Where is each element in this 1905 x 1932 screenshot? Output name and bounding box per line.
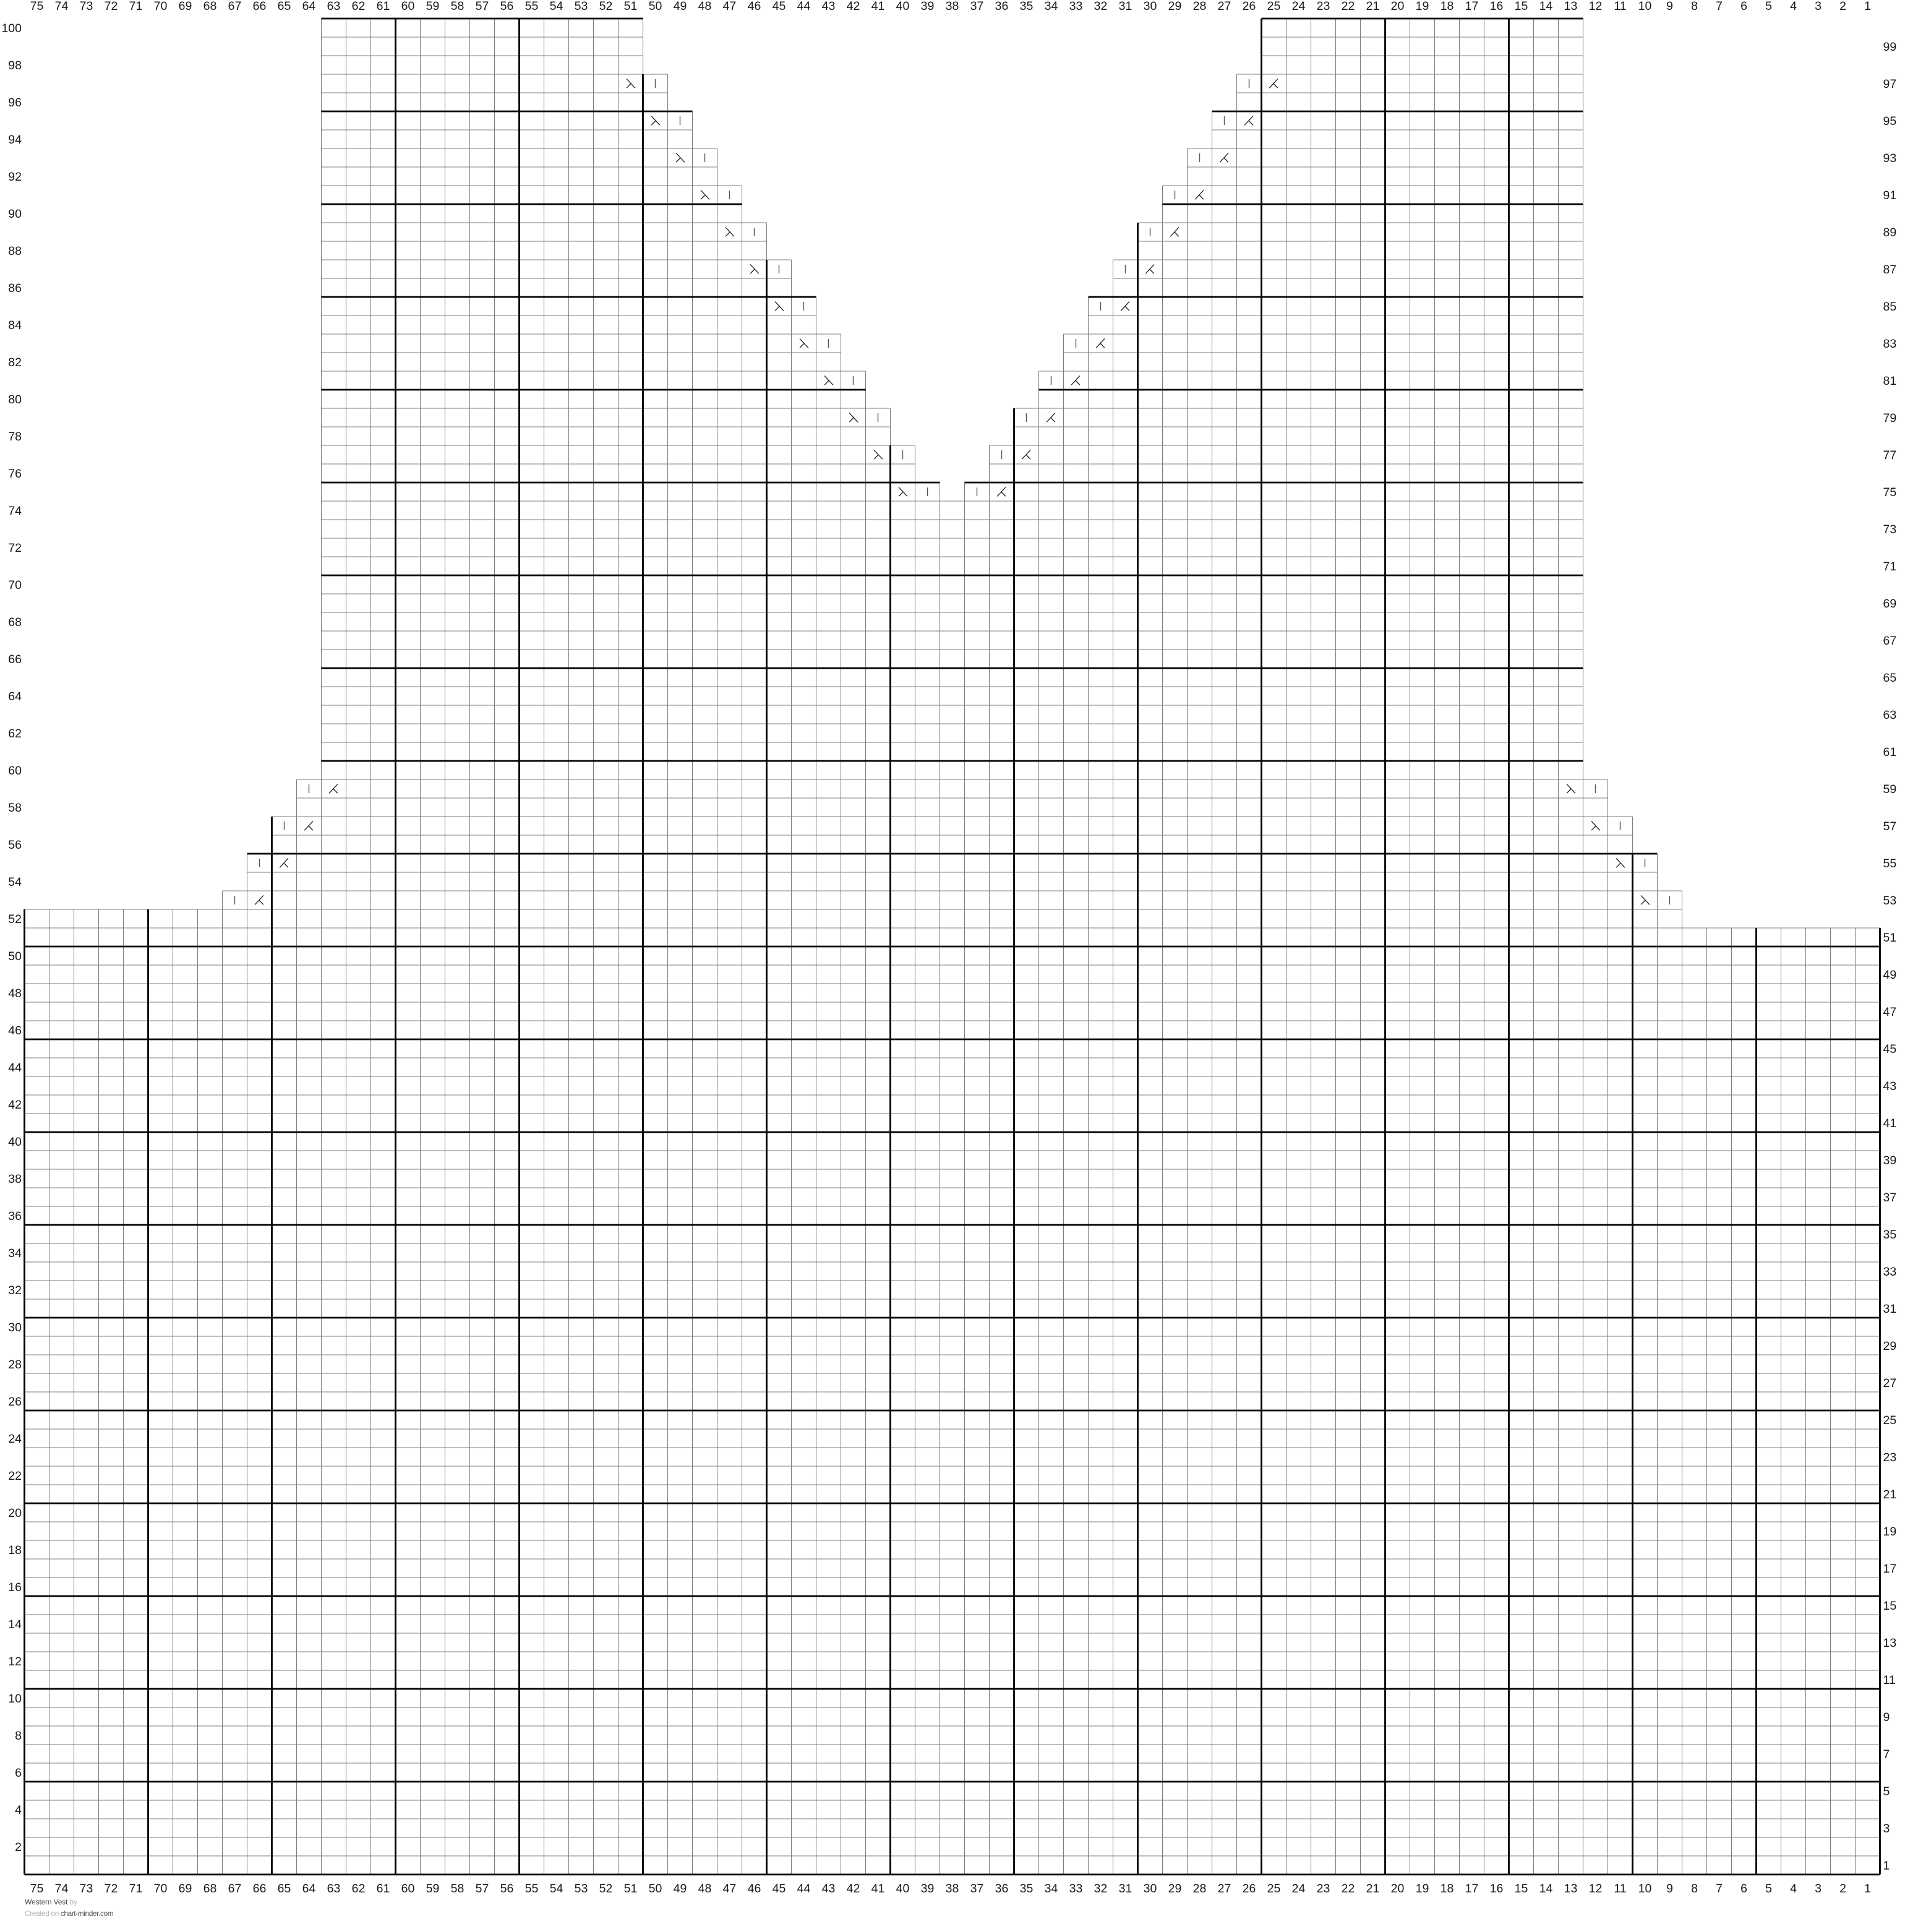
svg-text:80: 80 (8, 393, 22, 406)
svg-text:18: 18 (8, 1543, 22, 1557)
svg-text:67: 67 (228, 0, 242, 13)
svg-text:23: 23 (1883, 1451, 1897, 1464)
svg-text:2: 2 (1839, 0, 1846, 13)
svg-text:39: 39 (1883, 1154, 1897, 1167)
svg-text:64: 64 (302, 0, 316, 13)
svg-text:65: 65 (1883, 671, 1897, 685)
svg-text:6: 6 (1740, 0, 1747, 13)
svg-text:15: 15 (1883, 1599, 1897, 1613)
svg-text:38: 38 (8, 1172, 22, 1186)
svg-text:29: 29 (1168, 1882, 1182, 1896)
svg-text:24: 24 (1292, 1882, 1306, 1896)
svg-text:71: 71 (129, 0, 143, 13)
svg-text:84: 84 (8, 319, 22, 332)
svg-text:11: 11 (1614, 1882, 1626, 1896)
svg-text:57: 57 (476, 0, 489, 13)
svg-text:3: 3 (1883, 1822, 1890, 1835)
svg-text:21: 21 (1883, 1488, 1897, 1501)
svg-text:93: 93 (1883, 152, 1897, 165)
svg-text:32: 32 (1094, 0, 1108, 13)
svg-text:9: 9 (1666, 1882, 1673, 1896)
svg-text:36: 36 (995, 1882, 1009, 1896)
svg-text:61: 61 (1883, 745, 1897, 759)
svg-text:62: 62 (352, 1882, 366, 1896)
svg-text:33: 33 (1069, 1882, 1083, 1896)
svg-text:37: 37 (1883, 1191, 1897, 1204)
svg-text:44: 44 (8, 1061, 22, 1075)
svg-text:71: 71 (1883, 560, 1897, 573)
svg-text:17: 17 (1465, 1882, 1479, 1896)
svg-text:35: 35 (1883, 1228, 1897, 1242)
svg-text:34: 34 (1045, 1882, 1058, 1896)
svg-text:25: 25 (1267, 1882, 1281, 1896)
svg-text:52: 52 (8, 912, 22, 926)
svg-text:6: 6 (1740, 1882, 1747, 1896)
svg-text:59: 59 (1883, 783, 1897, 796)
svg-text:68: 68 (8, 616, 22, 629)
svg-text:52: 52 (599, 0, 613, 13)
svg-text:79: 79 (1883, 411, 1897, 425)
svg-text:41: 41 (871, 0, 885, 13)
svg-text:30: 30 (1144, 1882, 1157, 1896)
svg-text:48: 48 (698, 1882, 712, 1896)
svg-text:74: 74 (55, 0, 69, 13)
svg-text:41: 41 (1883, 1117, 1897, 1130)
svg-text:20: 20 (1391, 1882, 1405, 1896)
svg-text:31: 31 (1119, 0, 1132, 13)
svg-text:4: 4 (1790, 1882, 1797, 1896)
svg-text:17: 17 (1883, 1562, 1897, 1576)
svg-text:44: 44 (797, 1882, 811, 1896)
svg-text:46: 46 (8, 1024, 22, 1037)
svg-text:60: 60 (8, 764, 22, 778)
svg-text:50: 50 (8, 950, 22, 963)
svg-text:Created on chart-minder.com: Created on chart-minder.com (25, 1909, 114, 1918)
svg-text:54: 54 (550, 0, 563, 13)
svg-text:16: 16 (1490, 1882, 1504, 1896)
svg-text:33: 33 (1069, 0, 1083, 13)
svg-text:43: 43 (822, 1882, 836, 1896)
svg-text:5: 5 (1765, 0, 1772, 13)
svg-text:27: 27 (1883, 1376, 1897, 1390)
svg-text:55: 55 (525, 0, 539, 13)
svg-text:22: 22 (8, 1469, 22, 1483)
svg-text:85: 85 (1883, 300, 1897, 314)
svg-text:28: 28 (1193, 0, 1207, 13)
svg-text:1: 1 (1883, 1859, 1890, 1873)
svg-text:53: 53 (575, 0, 588, 13)
svg-text:59: 59 (426, 1882, 440, 1896)
svg-text:35: 35 (1020, 0, 1034, 13)
svg-text:58: 58 (8, 801, 22, 815)
svg-text:82: 82 (8, 356, 22, 369)
svg-text:49: 49 (674, 1882, 687, 1896)
svg-text:9: 9 (1666, 0, 1673, 13)
svg-text:30: 30 (8, 1321, 22, 1334)
svg-text:39: 39 (921, 1882, 935, 1896)
svg-text:66: 66 (253, 0, 267, 13)
svg-text:73: 73 (1883, 523, 1897, 536)
svg-text:22: 22 (1342, 0, 1355, 13)
svg-text:14: 14 (1539, 0, 1553, 13)
svg-text:44: 44 (797, 0, 811, 13)
svg-text:89: 89 (1883, 226, 1897, 239)
svg-text:28: 28 (8, 1358, 22, 1372)
svg-text:23: 23 (1317, 0, 1330, 13)
svg-text:36: 36 (995, 0, 1009, 13)
svg-text:19: 19 (1883, 1525, 1897, 1539)
svg-text:28: 28 (1193, 1882, 1207, 1896)
svg-text:19: 19 (1416, 1882, 1429, 1896)
svg-text:64: 64 (8, 690, 22, 703)
svg-text:68: 68 (203, 1882, 217, 1896)
svg-text:35: 35 (1020, 1882, 1034, 1896)
svg-text:11: 11 (1614, 0, 1626, 13)
svg-text:75: 75 (30, 0, 44, 13)
svg-text:50: 50 (649, 1882, 662, 1896)
svg-text:39: 39 (921, 0, 935, 13)
svg-text:54: 54 (8, 875, 22, 889)
svg-text:7: 7 (1716, 1882, 1723, 1896)
svg-text:70: 70 (154, 1882, 168, 1896)
svg-text:94: 94 (8, 133, 22, 147)
svg-text:61: 61 (377, 1882, 390, 1896)
svg-text:17: 17 (1465, 0, 1479, 13)
svg-text:74: 74 (8, 504, 22, 518)
svg-text:53: 53 (1883, 894, 1897, 908)
svg-text:65: 65 (278, 1882, 291, 1896)
svg-text:14: 14 (8, 1618, 22, 1631)
svg-text:24: 24 (1292, 0, 1306, 13)
svg-text:3: 3 (1815, 0, 1822, 13)
svg-text:16: 16 (8, 1581, 22, 1594)
svg-text:31: 31 (1119, 1882, 1132, 1896)
svg-text:99: 99 (1883, 40, 1897, 54)
svg-text:47: 47 (723, 0, 737, 13)
svg-text:38: 38 (946, 0, 959, 13)
svg-text:72: 72 (8, 541, 22, 555)
svg-text:81: 81 (1883, 374, 1897, 388)
svg-text:42: 42 (847, 0, 860, 13)
svg-text:1: 1 (1864, 1882, 1871, 1896)
svg-text:75: 75 (30, 1882, 44, 1896)
svg-text:Western Vest by: Western Vest by (25, 1898, 77, 1907)
svg-text:49: 49 (674, 0, 687, 13)
svg-text:23: 23 (1317, 1882, 1330, 1896)
svg-text:47: 47 (1883, 1005, 1897, 1019)
svg-text:5: 5 (1765, 1882, 1772, 1896)
svg-text:33: 33 (1883, 1265, 1897, 1279)
svg-text:26: 26 (1243, 1882, 1256, 1896)
svg-text:58: 58 (451, 1882, 464, 1896)
svg-text:26: 26 (8, 1395, 22, 1409)
svg-text:86: 86 (8, 281, 22, 295)
svg-text:57: 57 (1883, 820, 1897, 833)
svg-text:6: 6 (15, 1766, 22, 1780)
svg-text:29: 29 (1883, 1339, 1897, 1353)
svg-text:51: 51 (624, 0, 638, 13)
svg-text:100: 100 (1, 22, 22, 35)
svg-text:60: 60 (401, 1882, 415, 1896)
svg-text:43: 43 (822, 0, 836, 13)
svg-text:8: 8 (15, 1729, 22, 1743)
svg-text:48: 48 (698, 0, 712, 13)
svg-text:72: 72 (105, 1882, 118, 1896)
svg-text:14: 14 (1539, 1882, 1553, 1896)
svg-text:87: 87 (1883, 263, 1897, 277)
svg-text:10: 10 (1638, 0, 1652, 13)
svg-text:16: 16 (1490, 0, 1504, 13)
svg-text:30: 30 (1144, 0, 1157, 13)
svg-text:70: 70 (8, 578, 22, 592)
svg-text:40: 40 (896, 1882, 910, 1896)
svg-text:59: 59 (426, 0, 440, 13)
svg-text:25: 25 (1267, 0, 1281, 13)
svg-text:54: 54 (550, 1882, 563, 1896)
svg-text:25: 25 (1883, 1414, 1897, 1427)
svg-text:21: 21 (1366, 0, 1380, 13)
svg-text:15: 15 (1515, 1882, 1528, 1896)
svg-text:10: 10 (1638, 1882, 1652, 1896)
svg-text:49: 49 (1883, 968, 1897, 982)
svg-text:21: 21 (1366, 1882, 1380, 1896)
svg-text:34: 34 (8, 1247, 22, 1260)
svg-text:96: 96 (8, 96, 22, 109)
svg-text:98: 98 (8, 59, 22, 72)
svg-text:27: 27 (1218, 0, 1231, 13)
svg-text:31: 31 (1883, 1302, 1897, 1316)
svg-text:61: 61 (377, 0, 390, 13)
svg-text:1: 1 (1864, 0, 1871, 13)
svg-text:63: 63 (327, 0, 341, 13)
svg-text:45: 45 (773, 0, 786, 13)
svg-text:83: 83 (1883, 337, 1897, 351)
svg-text:53: 53 (575, 1882, 588, 1896)
svg-text:8: 8 (1691, 1882, 1698, 1896)
svg-text:58: 58 (451, 0, 464, 13)
svg-text:69: 69 (179, 0, 192, 13)
svg-text:56: 56 (8, 838, 22, 852)
svg-text:73: 73 (80, 1882, 93, 1896)
svg-text:2: 2 (15, 1840, 22, 1854)
svg-text:40: 40 (8, 1135, 22, 1149)
svg-text:51: 51 (1883, 931, 1897, 945)
svg-text:19: 19 (1416, 0, 1429, 13)
svg-text:32: 32 (8, 1284, 22, 1297)
svg-text:18: 18 (1441, 0, 1454, 13)
svg-text:45: 45 (1883, 1042, 1897, 1056)
svg-text:26: 26 (1243, 0, 1256, 13)
svg-text:68: 68 (203, 0, 217, 13)
svg-text:13: 13 (1564, 1882, 1578, 1896)
svg-text:91: 91 (1883, 189, 1897, 202)
svg-text:51: 51 (624, 1882, 638, 1896)
svg-text:97: 97 (1883, 77, 1897, 91)
svg-text:40: 40 (896, 0, 910, 13)
svg-text:24: 24 (8, 1432, 22, 1446)
svg-text:52: 52 (599, 1882, 613, 1896)
svg-text:15: 15 (1515, 0, 1528, 13)
svg-text:42: 42 (8, 1098, 22, 1112)
svg-text:34: 34 (1045, 0, 1058, 13)
svg-text:90: 90 (8, 207, 22, 221)
svg-text:66: 66 (8, 653, 22, 666)
svg-text:60: 60 (401, 0, 415, 13)
svg-text:22: 22 (1342, 1882, 1355, 1896)
svg-text:20: 20 (1391, 0, 1405, 13)
svg-text:7: 7 (1883, 1748, 1890, 1761)
svg-text:67: 67 (228, 1882, 242, 1896)
svg-text:70: 70 (154, 0, 168, 13)
svg-text:5: 5 (1883, 1785, 1890, 1798)
svg-text:2: 2 (1839, 1882, 1846, 1896)
svg-text:10: 10 (8, 1692, 22, 1706)
svg-text:95: 95 (1883, 114, 1897, 128)
svg-text:36: 36 (8, 1209, 22, 1223)
svg-text:64: 64 (302, 1882, 316, 1896)
svg-text:73: 73 (80, 0, 93, 13)
svg-text:43: 43 (1883, 1080, 1897, 1093)
svg-text:76: 76 (8, 467, 22, 481)
svg-text:37: 37 (970, 0, 984, 13)
svg-text:62: 62 (352, 0, 366, 13)
svg-text:75: 75 (1883, 486, 1897, 499)
svg-text:45: 45 (773, 1882, 786, 1896)
svg-text:20: 20 (8, 1506, 22, 1520)
svg-text:9: 9 (1883, 1711, 1890, 1724)
svg-text:63: 63 (1883, 708, 1897, 722)
svg-text:74: 74 (55, 1882, 69, 1896)
svg-text:50: 50 (649, 0, 662, 13)
svg-text:71: 71 (129, 1882, 143, 1896)
svg-text:7: 7 (1716, 0, 1723, 13)
svg-text:57: 57 (476, 1882, 489, 1896)
svg-text:47: 47 (723, 1882, 737, 1896)
svg-text:13: 13 (1564, 0, 1578, 13)
svg-text:3: 3 (1815, 1882, 1822, 1896)
svg-text:77: 77 (1883, 449, 1897, 462)
svg-text:41: 41 (871, 1882, 885, 1896)
svg-text:13: 13 (1883, 1636, 1897, 1650)
svg-text:32: 32 (1094, 1882, 1108, 1896)
svg-text:12: 12 (8, 1655, 22, 1668)
svg-text:62: 62 (8, 727, 22, 741)
svg-text:38: 38 (946, 1882, 959, 1896)
svg-text:48: 48 (8, 987, 22, 1000)
svg-text:55: 55 (1883, 857, 1897, 870)
svg-text:12: 12 (1589, 1882, 1603, 1896)
svg-text:66: 66 (253, 1882, 267, 1896)
svg-text:27: 27 (1218, 1882, 1231, 1896)
svg-text:56: 56 (500, 0, 514, 13)
svg-text:72: 72 (105, 0, 118, 13)
svg-text:56: 56 (500, 1882, 514, 1896)
svg-text:46: 46 (748, 0, 761, 13)
svg-text:55: 55 (525, 1882, 539, 1896)
svg-text:8: 8 (1691, 0, 1698, 13)
svg-text:92: 92 (8, 170, 22, 184)
svg-text:67: 67 (1883, 634, 1897, 648)
svg-text:78: 78 (8, 430, 22, 444)
svg-text:4: 4 (1790, 0, 1797, 13)
svg-text:12: 12 (1589, 0, 1603, 13)
svg-text:37: 37 (970, 1882, 984, 1896)
svg-text:11: 11 (1883, 1673, 1896, 1687)
svg-text:46: 46 (748, 1882, 761, 1896)
svg-text:88: 88 (8, 244, 22, 258)
svg-text:69: 69 (1883, 597, 1897, 611)
svg-text:63: 63 (327, 1882, 341, 1896)
svg-text:69: 69 (179, 1882, 192, 1896)
svg-text:4: 4 (15, 1803, 22, 1817)
svg-text:42: 42 (847, 1882, 860, 1896)
svg-text:29: 29 (1168, 0, 1182, 13)
svg-text:65: 65 (278, 0, 291, 13)
svg-text:18: 18 (1441, 1882, 1454, 1896)
